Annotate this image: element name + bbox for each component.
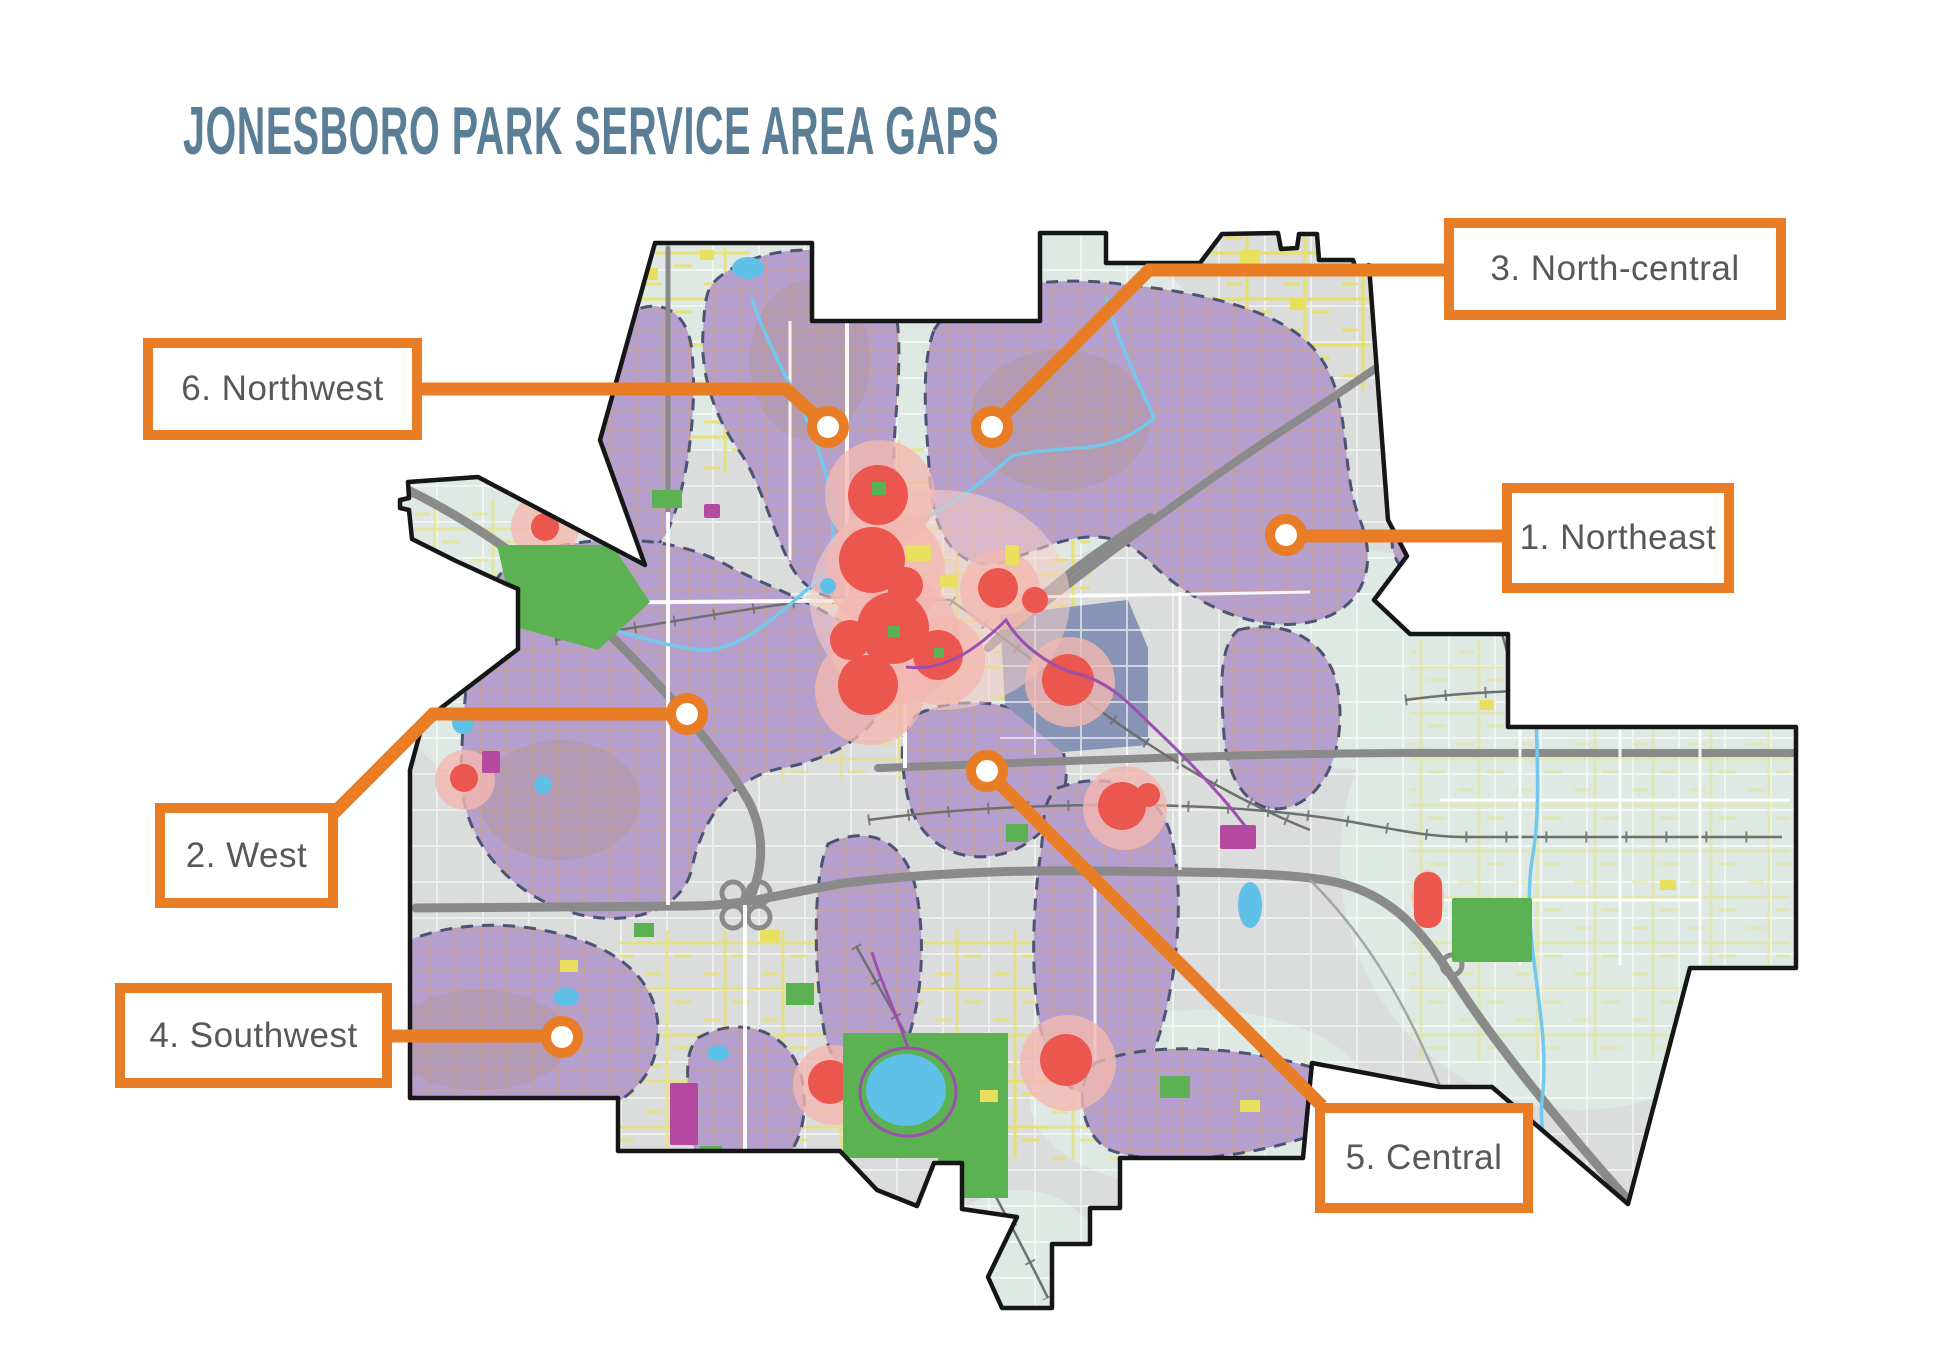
callout-label-central: 5. Central — [1346, 1138, 1503, 1178]
callout-box-northeast: 1. Northeast — [1502, 483, 1734, 593]
map-detail-layers — [320, 180, 1860, 1350]
marker-west — [671, 698, 703, 730]
marker-northeast — [1270, 519, 1302, 551]
park-service-area-map-page: JONESBORO PARK SERVICE AREA GAPS 1. Nort… — [0, 0, 1950, 1350]
callout-box-north-central: 3. North-central — [1444, 218, 1786, 320]
callout-box-southwest: 4. Southwest — [115, 983, 392, 1088]
callout-label-west: 2. West — [186, 836, 308, 876]
marker-north-central — [976, 411, 1008, 443]
callout-label-northwest: 6. Northwest — [181, 369, 383, 409]
callout-label-southwest: 4. Southwest — [149, 1016, 357, 1056]
callout-box-northwest: 6. Northwest — [143, 338, 422, 440]
marker-central — [971, 755, 1003, 787]
callout-box-west: 2. West — [155, 803, 338, 908]
marker-southwest — [546, 1021, 578, 1053]
callout-label-northeast: 1. Northeast — [1520, 518, 1717, 558]
callout-label-north-central: 3. North-central — [1490, 249, 1739, 289]
page-title: JONESBORO PARK SERVICE AREA GAPS — [183, 96, 999, 167]
marker-northwest — [812, 411, 844, 443]
callout-box-central: 5. Central — [1315, 1103, 1533, 1213]
jonesboro-map — [0, 0, 1950, 1350]
